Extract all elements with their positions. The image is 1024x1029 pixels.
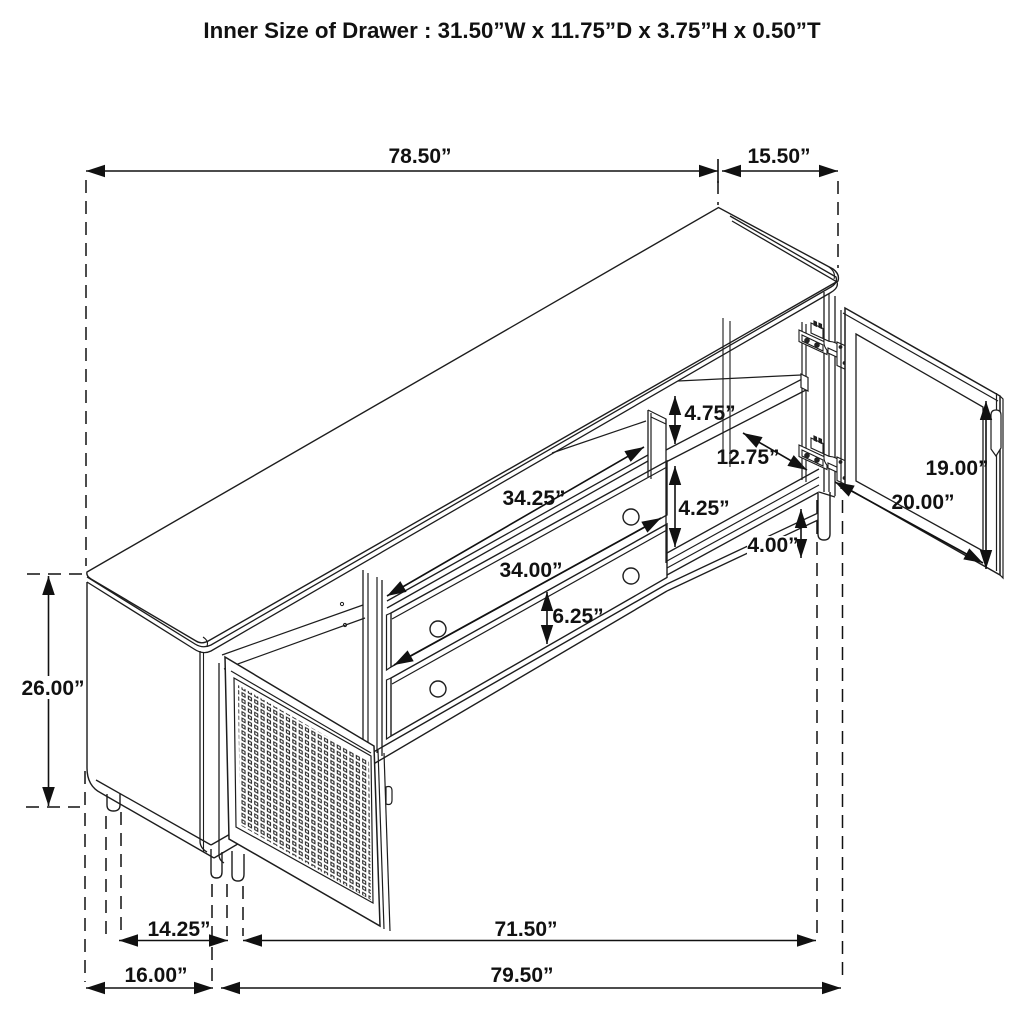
svg-text:26.00”: 26.00” bbox=[21, 677, 84, 700]
svg-text:4.75”: 4.75” bbox=[684, 402, 735, 425]
svg-text:12.75”: 12.75” bbox=[716, 446, 779, 469]
svg-text:19.00”: 19.00” bbox=[925, 457, 988, 480]
svg-text:4.00”: 4.00” bbox=[747, 534, 798, 557]
svg-text:78.50”: 78.50” bbox=[388, 145, 451, 168]
svg-text:6.25”: 6.25” bbox=[552, 605, 603, 628]
svg-text:Inner Size of Drawer : 31.50”W: Inner Size of Drawer : 31.50”W x 11.75”D… bbox=[203, 18, 821, 43]
svg-text:15.50”: 15.50” bbox=[747, 145, 810, 168]
svg-text:16.00”: 16.00” bbox=[124, 964, 187, 987]
svg-text:34.00”: 34.00” bbox=[499, 559, 562, 582]
svg-text:4.25”: 4.25” bbox=[678, 497, 729, 520]
svg-text:71.50”: 71.50” bbox=[494, 918, 557, 941]
svg-text:34.25”: 34.25” bbox=[502, 487, 565, 510]
svg-text:14.25”: 14.25” bbox=[147, 918, 210, 941]
svg-text:20.00”: 20.00” bbox=[891, 491, 954, 514]
svg-text:79.50”: 79.50” bbox=[490, 964, 553, 987]
